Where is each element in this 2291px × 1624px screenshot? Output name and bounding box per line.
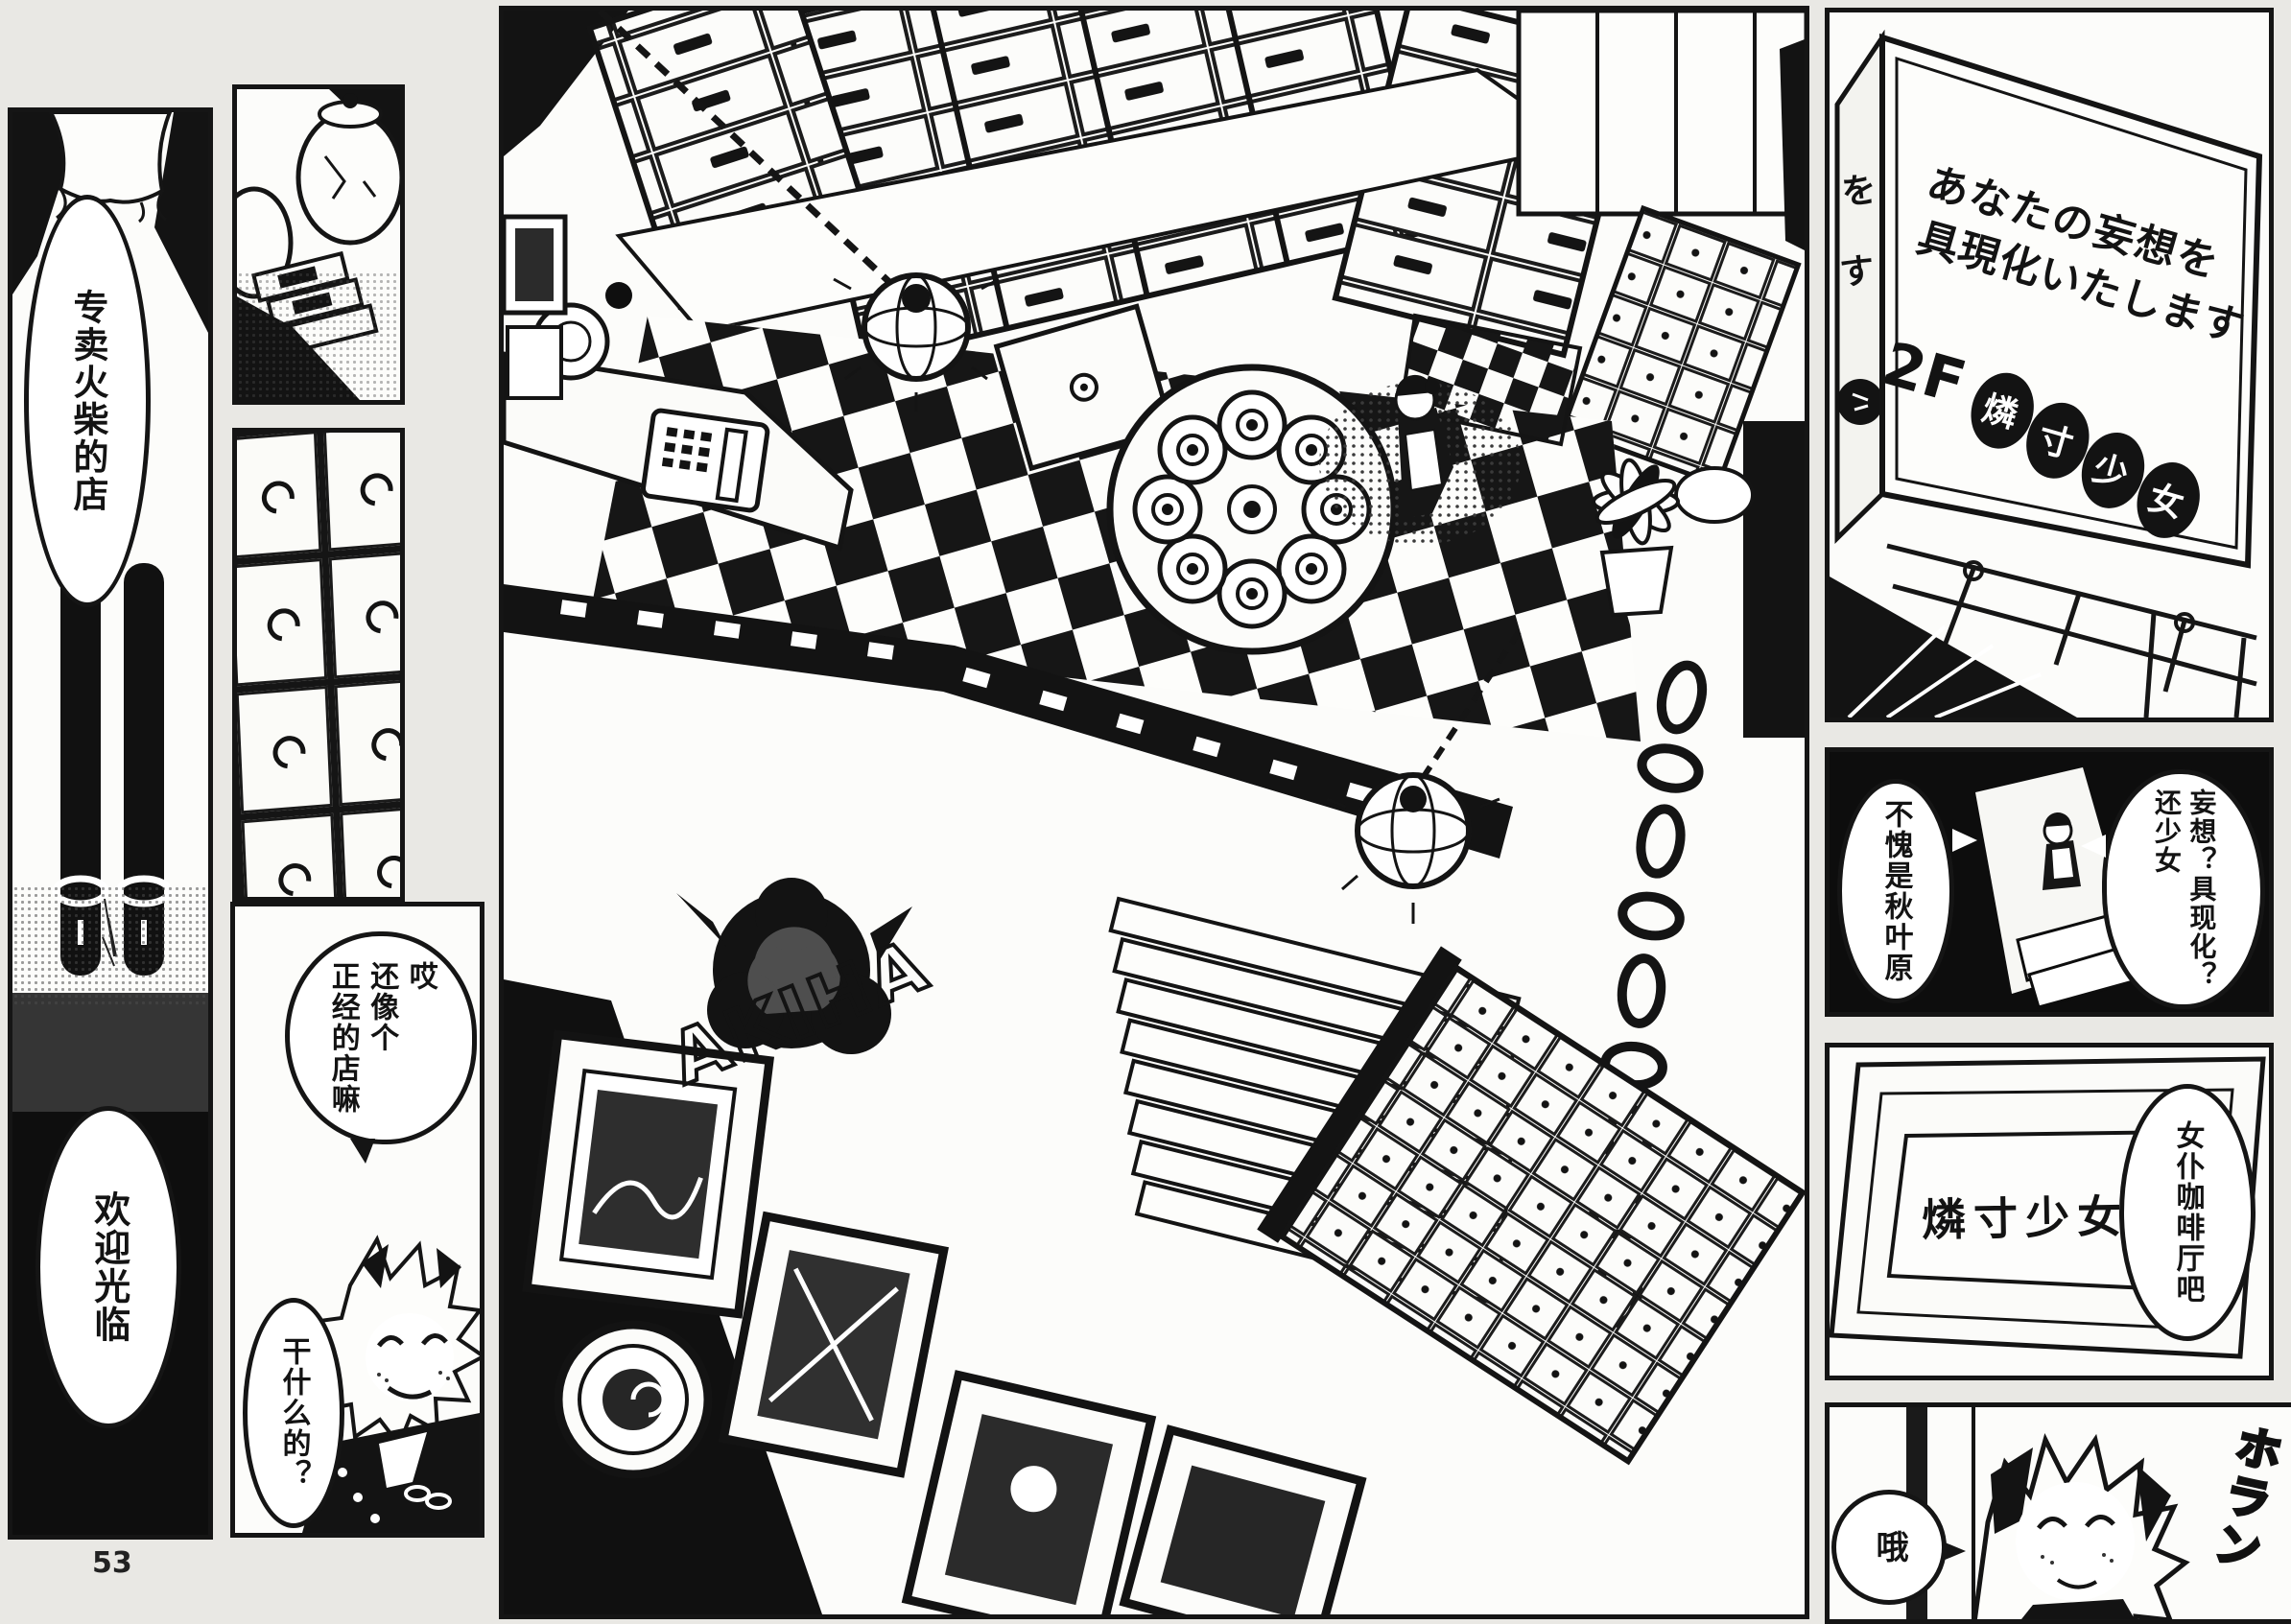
halftone-shade	[237, 271, 400, 400]
drawer	[236, 686, 333, 813]
picture-frame-2	[723, 1216, 944, 1473]
panel-shop-overhead: AKIHA	[499, 6, 1809, 1619]
panel-boy-remark: 哎 还像个 正经的店嘛 干什么的？	[230, 902, 484, 1538]
drawer	[232, 431, 321, 558]
bubble-tail	[2081, 835, 2106, 858]
panel-drawer-chest	[232, 428, 405, 902]
speech-bubble-delusion: 妄想？具现化？ 还少女	[2102, 769, 2265, 1009]
drawer	[242, 813, 339, 902]
dark-pillar	[1743, 421, 1805, 738]
telephone	[642, 410, 768, 511]
floor-sign-name: 燐寸少女	[1921, 1182, 2129, 1249]
maid-skirt	[51, 112, 170, 202]
awning	[1830, 577, 2077, 718]
speech-bubble-oh: 哦	[1831, 1490, 1947, 1605]
glass-jar	[298, 112, 400, 243]
speech-text-oh: 哦	[1868, 1530, 1910, 1565]
billboard-artwork: あなたの妄想を 具現化いたします 2F 燐 寸 少 女 を す	[1830, 12, 2269, 718]
speech-text-what: 干什么的？	[275, 1336, 313, 1490]
panel-jars	[232, 84, 405, 405]
halftone-band	[12, 885, 208, 1004]
drawer	[340, 806, 405, 902]
cabinet-far-right	[1519, 11, 1805, 214]
manga-page: 专卖火柴的店 欢迎光临	[0, 0, 2291, 1624]
speech-bubble-welcome: 欢迎光临	[35, 1106, 181, 1428]
speech-text-welcome: 欢迎光临	[84, 1190, 131, 1344]
picture-frame-3	[907, 1376, 1151, 1614]
speech-text-remark: 哎 还像个 正经的店嘛	[322, 961, 439, 1115]
panel-billboard: あなたの妄想を 具現化いたします 2F 燐 寸 少 女 を す	[1825, 8, 2274, 722]
bubble-tail	[1943, 1542, 1966, 1561]
bubble-tail	[350, 1139, 375, 1164]
wall-frame-small-2	[508, 327, 561, 398]
picture-frame-4	[1124, 1430, 1361, 1614]
drawer	[329, 551, 405, 678]
panel-dark-dialogue: 不愧是秋叶原 妄想？具现化？ 还少女	[1825, 747, 2274, 1017]
speech-text-akihabara: 不愧是秋叶原	[1878, 799, 1915, 983]
doorway-gap	[1780, 39, 1805, 250]
panel-boy-bottom: 哦 ホラン	[1825, 1402, 2291, 1624]
speech-bubble-remark: 哎 还像个 正经的店嘛	[285, 931, 477, 1144]
speech-bubble-what: 干什么的？	[243, 1298, 344, 1528]
speech-bubble-akihabara: 不愧是秋叶原	[1837, 779, 1954, 1003]
speech-text-store: 专卖火柴的店	[64, 289, 110, 513]
panel-floor-sign: 燐寸少女 女仆咖啡厅吧	[1825, 1043, 2274, 1380]
panel-left-match-girl: 专卖火柴的店 欢迎光临	[8, 107, 213, 1540]
side-logo-circle	[1837, 379, 1883, 425]
speech-bubble-store: 专卖火柴的店	[24, 195, 151, 607]
speech-bubble-maidcafe: 女仆咖啡厅吧	[2119, 1084, 2256, 1341]
speech-text-delusion: 妄想？具现化？ 还少女	[2149, 788, 2219, 990]
page-number: 53	[92, 1546, 132, 1580]
apothecary-drawers	[232, 428, 405, 902]
speech-text-maidcafe: 女仆咖啡厅吧	[2169, 1120, 2207, 1305]
boy-head-large	[1969, 1440, 2185, 1619]
bubble-tail	[1952, 829, 1977, 852]
bowl	[605, 282, 632, 309]
side-char-2: す	[1838, 250, 1877, 294]
drawer	[334, 678, 405, 806]
drawer	[232, 558, 327, 686]
ink-splat-logo: AKIHA	[660, 878, 941, 1101]
drawer	[323, 428, 405, 551]
picture-frame-round	[558, 1325, 708, 1474]
side-char-1: を	[1840, 170, 1878, 213]
wall-lamp	[1676, 468, 1753, 522]
shop-interior-artwork: AKIHA	[504, 11, 1805, 1614]
